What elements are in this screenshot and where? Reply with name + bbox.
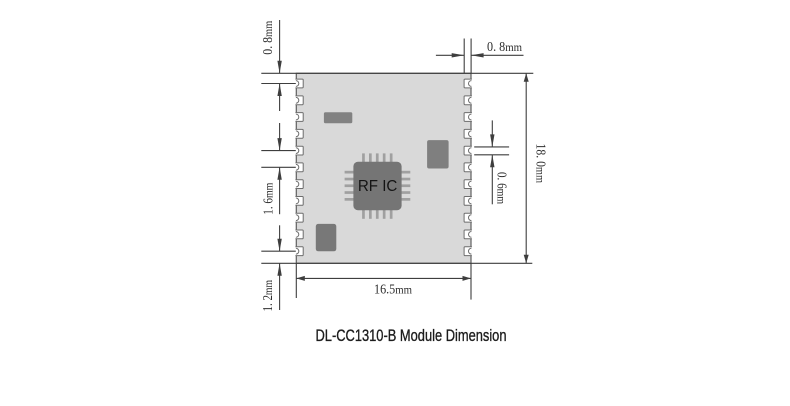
- svg-text:DL-CC1310-B Module Dimension: DL-CC1310-B Module Dimension: [316, 326, 507, 345]
- svg-text:1. 6mm: 1. 6mm: [260, 182, 275, 215]
- svg-text:0. 8mm: 0. 8mm: [487, 39, 523, 54]
- svg-text:18. 0mm: 18. 0mm: [534, 144, 549, 184]
- svg-text:0. 6mm: 0. 6mm: [495, 172, 510, 205]
- svg-text:1. 2mm: 1. 2mm: [260, 279, 275, 311]
- svg-text:0. 8mm: 0. 8mm: [260, 20, 275, 55]
- svg-text:RF IC: RF IC: [358, 178, 398, 195]
- svg-text:16.5mm: 16.5mm: [374, 281, 413, 296]
